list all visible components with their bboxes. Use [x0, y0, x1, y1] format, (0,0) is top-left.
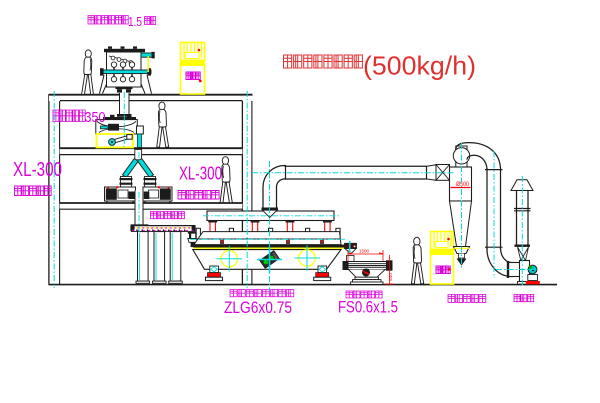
svg-text:ZLG6x0.75: ZLG6x0.75	[224, 298, 292, 317]
svg-text:350: 350	[85, 110, 106, 126]
svg-text:XL-300: XL-300	[179, 164, 222, 184]
svg-text:Ø500: Ø500	[456, 182, 470, 188]
svg-text:1.5: 1.5	[128, 14, 142, 29]
svg-text:1500: 1500	[359, 249, 369, 255]
svg-text:(500kg/h): (500kg/h)	[363, 51, 476, 81]
svg-text:FS0.6x1.5: FS0.6x1.5	[338, 298, 398, 317]
svg-text:540: 540	[388, 273, 394, 281]
